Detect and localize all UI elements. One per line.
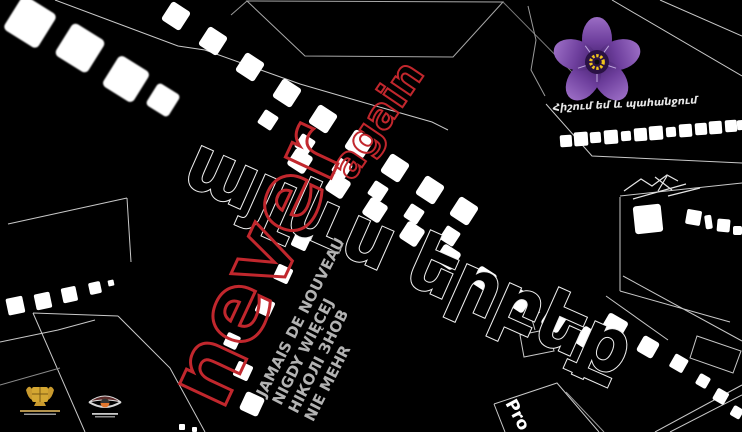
flower-center-dot (595, 60, 600, 65)
logo-caption-line (92, 413, 118, 415)
logo-caption-line (95, 416, 115, 418)
logo-caption-line (24, 414, 56, 416)
poster: այլևս երբեք never again JAMAIS DE NOUVEA… (0, 0, 742, 432)
logo-caption-line (20, 410, 60, 412)
poster-canvas: այլևս երբեք never again JAMAIS DE NOUVEA… (0, 0, 742, 432)
